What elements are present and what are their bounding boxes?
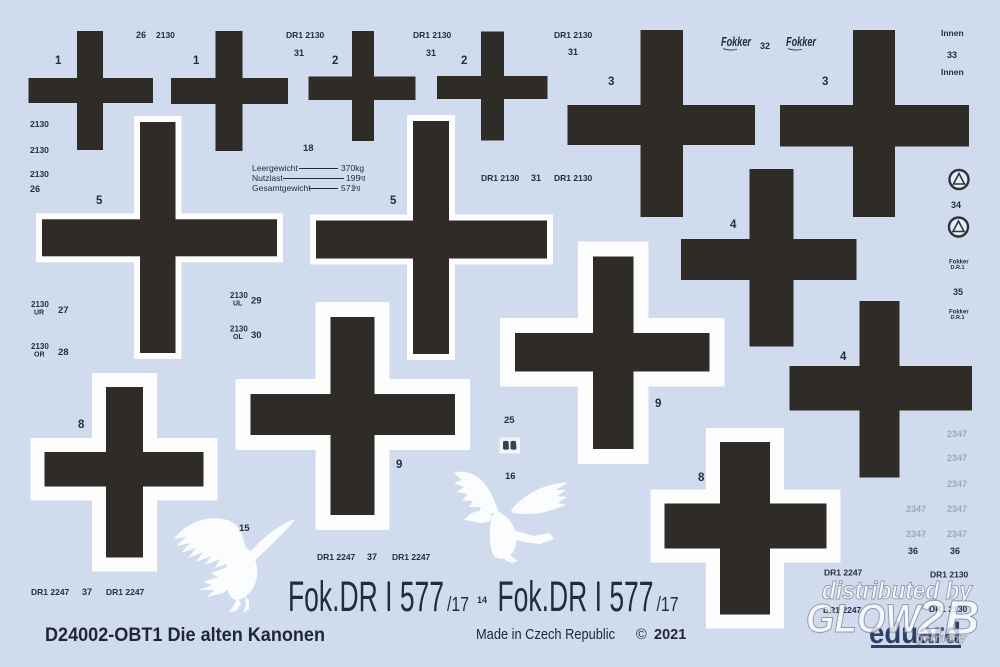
svg-text:370kg: 370kg: [341, 163, 364, 173]
svg-text:2347: 2347: [906, 504, 926, 514]
svg-text:1: 1: [55, 55, 62, 67]
svg-text:D.R.1: D.R.1: [951, 265, 965, 271]
svg-text:3: 3: [822, 76, 828, 88]
svg-text:Fokker: Fokker: [786, 34, 817, 49]
svg-text:Nutzlast: Nutzlast: [252, 173, 283, 183]
svg-text:Fok.DR I 577: Fok.DR I 577: [288, 573, 444, 621]
svg-text:Innen: Innen: [941, 67, 964, 77]
svg-text:DR1 2247: DR1 2247: [824, 568, 863, 578]
svg-text:18: 18: [303, 143, 314, 154]
svg-text:3: 3: [608, 76, 614, 88]
svg-text:2: 2: [332, 55, 338, 67]
svg-text:2347: 2347: [947, 479, 967, 489]
svg-text:29: 29: [251, 296, 262, 307]
svg-text:27: 27: [58, 305, 69, 316]
svg-text:DR1 2247: DR1 2247: [106, 587, 145, 597]
svg-text:2021: 2021: [654, 627, 686, 643]
svg-text:germany: germany: [915, 631, 967, 645]
svg-text:31: 31: [294, 48, 304, 58]
svg-text:35: 35: [953, 287, 963, 297]
svg-text:2130: 2130: [30, 145, 49, 155]
svg-text:Fokker: Fokker: [721, 34, 752, 49]
svg-text:15: 15: [239, 523, 250, 534]
svg-text:2347: 2347: [947, 453, 967, 463]
svg-text:DR1 2247: DR1 2247: [392, 552, 431, 562]
svg-text:Leergewicht: Leergewicht: [252, 163, 298, 173]
svg-text:1: 1: [193, 55, 200, 67]
svg-text:37: 37: [82, 587, 92, 597]
svg-text:Fok.DR I 577: Fok.DR I 577: [498, 573, 654, 621]
svg-text:Made in Czech Republic: Made in Czech Republic: [476, 627, 615, 643]
svg-text:26: 26: [136, 30, 146, 40]
svg-text:UL: UL: [233, 301, 243, 308]
svg-text:31: 31: [426, 48, 436, 58]
svg-text:16: 16: [505, 471, 516, 482]
svg-text:OL: OL: [233, 334, 243, 341]
svg-text:kg: kg: [359, 176, 365, 182]
svg-text:4: 4: [730, 219, 737, 231]
svg-text:GLOW: GLOW: [806, 597, 923, 641]
svg-text:31: 31: [531, 173, 541, 183]
svg-text:Innen: Innen: [941, 28, 964, 38]
svg-text:DR1 2130: DR1 2130: [554, 30, 593, 40]
svg-text:30: 30: [251, 330, 262, 341]
svg-text:©: ©: [636, 627, 647, 643]
svg-text:4: 4: [840, 351, 847, 363]
svg-text:2347: 2347: [947, 529, 967, 539]
svg-text:33: 33: [947, 50, 957, 60]
svg-text:DR1 2247: DR1 2247: [31, 587, 70, 597]
svg-text:/17: /17: [657, 594, 679, 616]
svg-text:2347: 2347: [947, 429, 967, 439]
svg-text:2: 2: [461, 55, 467, 67]
svg-text:31: 31: [568, 47, 578, 57]
svg-text:DR1 2130: DR1 2130: [413, 30, 452, 40]
svg-text:/17: /17: [447, 594, 469, 616]
svg-text:Gesamtgewicht: Gesamtgewicht: [252, 183, 311, 193]
svg-text:2347: 2347: [947, 504, 967, 514]
svg-text:32: 32: [760, 41, 770, 51]
svg-text:2130: 2130: [31, 300, 49, 309]
svg-text:DR1 2247: DR1 2247: [317, 552, 356, 562]
svg-text:36: 36: [908, 546, 918, 556]
svg-text:DR1 2130: DR1 2130: [286, 30, 325, 40]
svg-text:D.R.1: D.R.1: [951, 315, 965, 321]
svg-text:2130: 2130: [230, 291, 248, 300]
svg-text:DR1 2130: DR1 2130: [481, 173, 520, 183]
svg-text:kg: kg: [354, 186, 360, 192]
svg-text:2130: 2130: [230, 325, 248, 334]
svg-text:2130: 2130: [156, 30, 175, 40]
svg-text:25: 25: [504, 415, 515, 426]
svg-text:14: 14: [477, 595, 487, 605]
svg-text:5: 5: [390, 195, 397, 207]
svg-text:8: 8: [78, 419, 85, 431]
svg-text:D24002-OBT1 Die alten Kanonen: D24002-OBT1 Die alten Kanonen: [45, 625, 325, 646]
svg-text:36: 36: [950, 546, 960, 556]
svg-text:2130: 2130: [31, 342, 49, 351]
svg-text:2347: 2347: [906, 529, 926, 539]
svg-text:28: 28: [58, 347, 69, 358]
svg-text:9: 9: [655, 398, 661, 410]
svg-text:37: 37: [367, 552, 377, 562]
svg-text:2130: 2130: [30, 119, 49, 129]
svg-text:34: 34: [951, 200, 961, 210]
svg-text:UR: UR: [34, 310, 44, 317]
svg-text:2130: 2130: [30, 169, 49, 179]
svg-text:9: 9: [396, 459, 402, 471]
svg-text:5: 5: [96, 195, 103, 207]
svg-text:OR: OR: [34, 352, 45, 359]
svg-text:26: 26: [30, 184, 40, 194]
svg-text:8: 8: [698, 472, 705, 484]
svg-text:DR1 2130: DR1 2130: [554, 173, 593, 183]
